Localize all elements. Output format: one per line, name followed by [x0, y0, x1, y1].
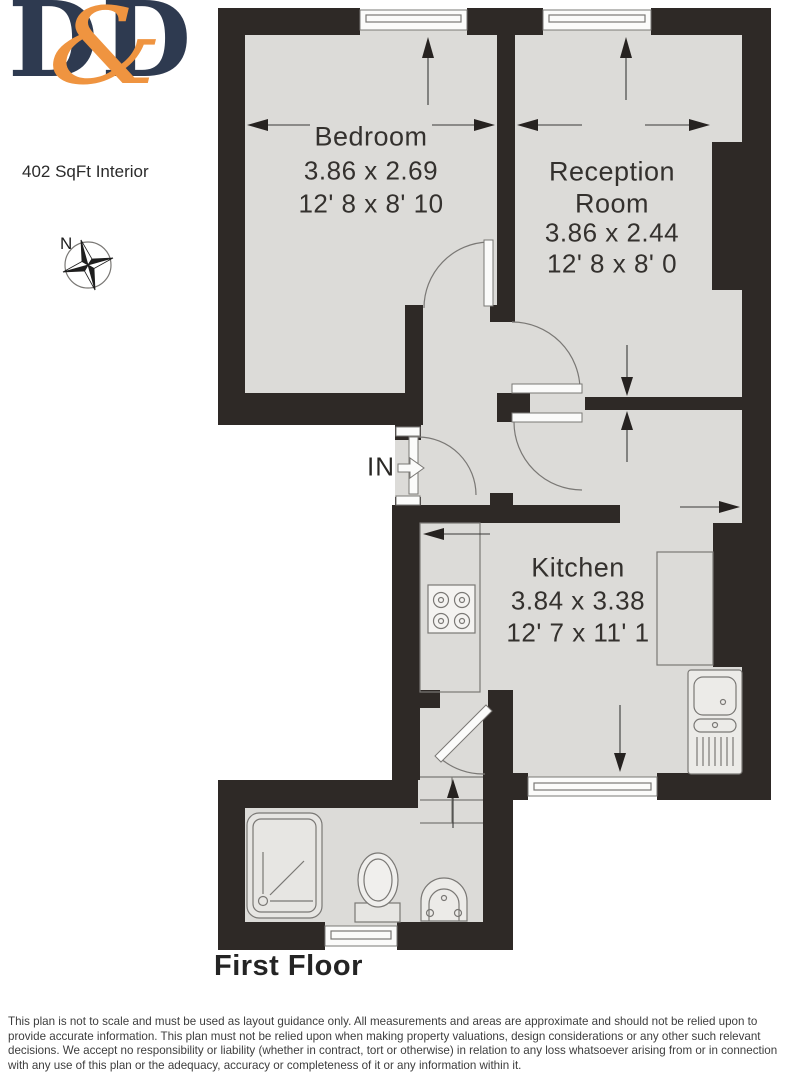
kitchen-counter-right [657, 552, 713, 665]
reception-arrow-left [517, 119, 582, 131]
compass-icon [63, 240, 113, 290]
reception-arrow-down [621, 345, 633, 396]
floor-title: First Floor [214, 950, 363, 983]
bedroom-door [424, 240, 493, 308]
disclaimer-text: This plan is not to scale and must be us… [8, 1015, 787, 1074]
bathroom-window [325, 926, 397, 946]
kitchen-label: Kitchen [531, 553, 625, 584]
bedroom-arrow-up [422, 37, 434, 105]
reception-label-line2: Room [575, 189, 649, 220]
bedroom-label: Bedroom [314, 122, 427, 153]
stairs-arrow-up [447, 779, 459, 828]
kitchen-arrow-right [680, 501, 740, 513]
bathroom-lobby-door [435, 705, 492, 774]
hob-icon [428, 585, 475, 633]
doors [396, 240, 582, 774]
floor-plan-page: D D & 402 SqFt Interior N [0, 0, 793, 1080]
reception-window [543, 10, 651, 30]
bedroom-imperial-dims: 12' 8 x 8' 10 [298, 189, 443, 220]
bedroom-arrow-right [432, 119, 495, 131]
basin-icon [421, 878, 467, 921]
bathroom-fixtures [247, 813, 467, 922]
bedroom-arrow-left [247, 119, 310, 131]
reception-door [512, 322, 582, 393]
kitchen-metric-dims: 3.84 x 3.38 [511, 586, 645, 617]
shower-icon [247, 813, 322, 918]
bedroom-window [360, 10, 467, 30]
kitchen-window [528, 777, 657, 796]
bedroom-metric-dims: 3.86 x 2.69 [304, 156, 438, 187]
toilet-icon [355, 853, 400, 922]
kitchen-imperial-dims: 12' 7 x 11' 1 [506, 618, 649, 649]
entrance-in-label: IN [367, 452, 395, 483]
reception-metric-dims: 3.86 x 2.44 [545, 218, 679, 249]
kitchen-arrow-up [621, 411, 633, 462]
kitchen-arrow-down [614, 705, 626, 772]
entrance-arrow-icon [398, 458, 424, 478]
reception-imperial-dims: 12' 8 x 8' 0 [547, 249, 677, 280]
sink-icon [688, 670, 742, 774]
reception-label-line1: Reception [549, 157, 675, 188]
reception-arrow-up [620, 37, 632, 100]
reception-arrow-right [645, 119, 710, 131]
kitchen-door [512, 413, 582, 490]
